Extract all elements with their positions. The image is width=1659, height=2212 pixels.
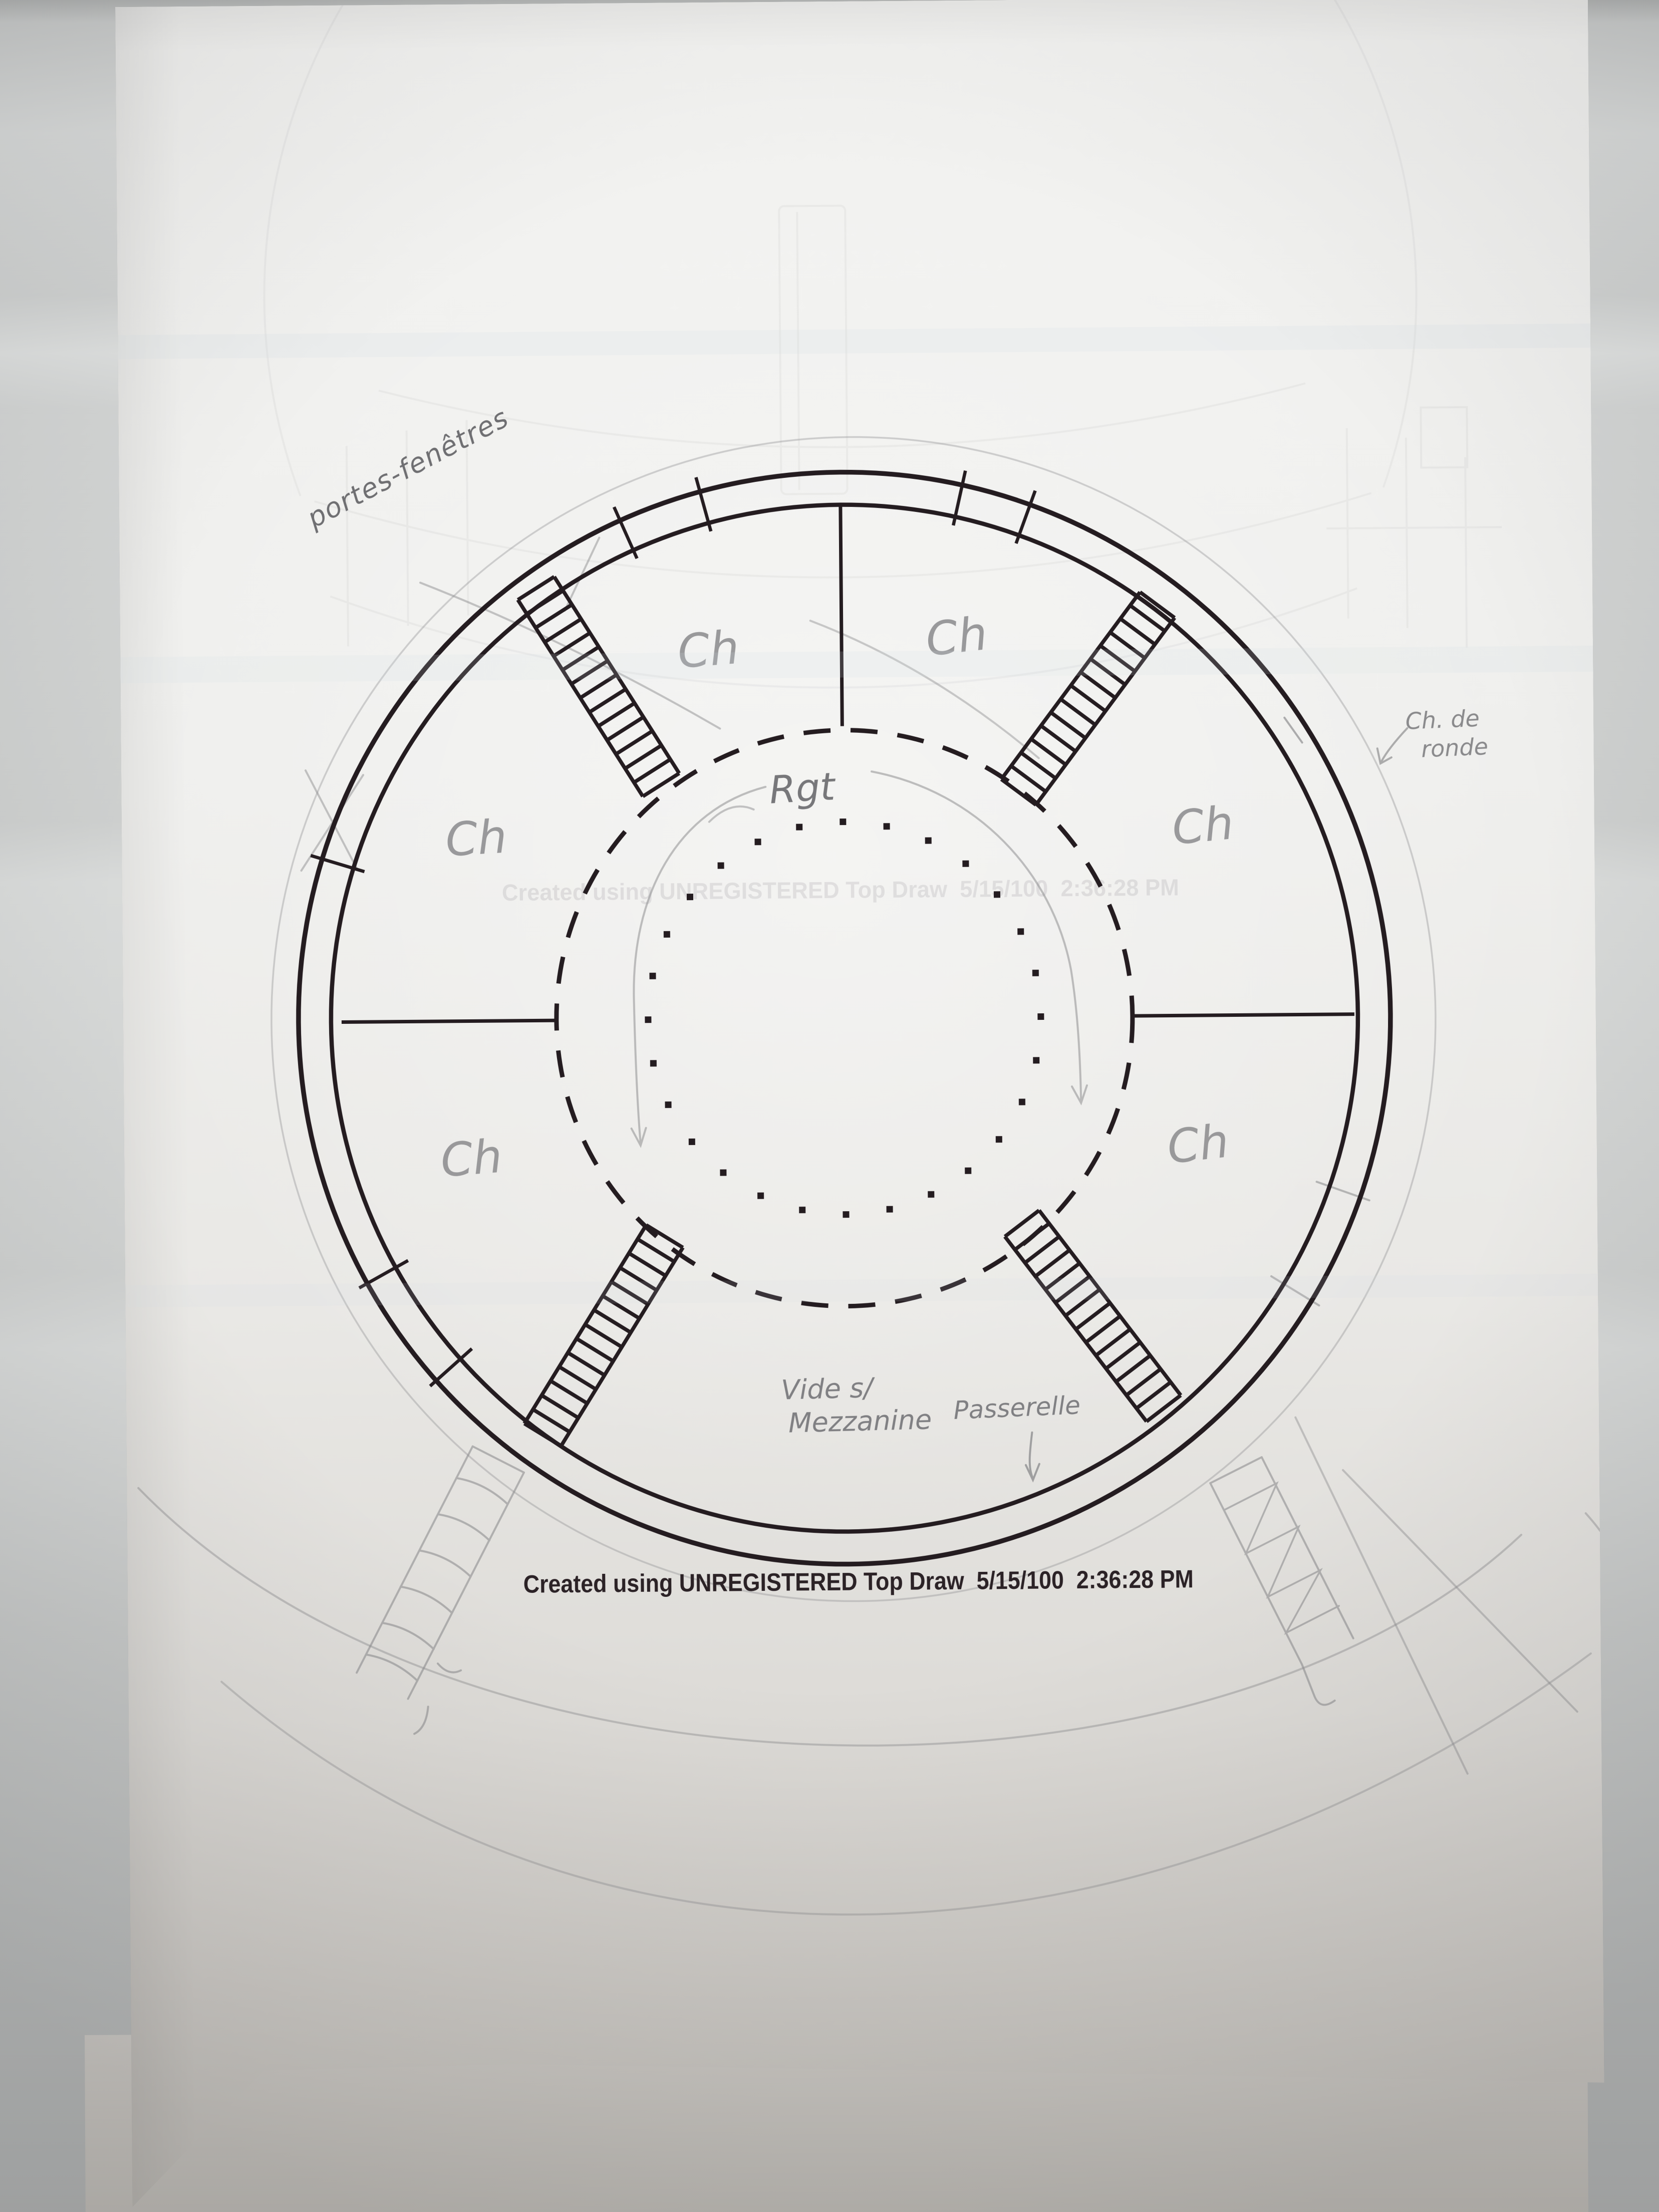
stair-southeast	[1005, 1210, 1181, 1421]
pencil-sketch-layer	[130, 431, 1605, 1920]
stair-northwest	[518, 577, 679, 796]
room-label: Ch	[923, 607, 990, 667]
pencil-base-arc-1	[138, 1477, 1523, 1751]
paper-sheet: Created using UNREGISTERED Top Draw 5/15…	[115, 0, 1605, 2212]
radial-line-west	[342, 1020, 557, 1022]
stair-northeast	[1001, 592, 1175, 805]
annotation-rgt: Rgt	[768, 764, 838, 812]
drawing-svg: Created using UNREGISTERED Top Draw 5/15…	[115, 0, 1605, 2212]
ghost-stamp-text: Created using UNREGISTERED Top Draw 5/15…	[502, 874, 1179, 906]
stair-southwest	[524, 1225, 683, 1446]
room-label: Ch	[439, 1130, 504, 1188]
annotation-mezzanine: Mezzanine	[788, 1404, 932, 1439]
handwritten-annotations: Ch Ch Ch Ch Ch Ch Rgt portes-fenêtres Ch…	[301, 394, 1494, 1443]
circulation-arrow-right	[872, 770, 1087, 1104]
circulation-arrow-left	[629, 787, 768, 1146]
photo-frame: Created using UNREGISTERED Top Draw 5/15…	[0, 0, 1659, 2212]
room-label: Ch	[1165, 1114, 1232, 1174]
pencil-base-arc-2	[221, 1653, 1593, 1919]
pencil-ramp-line-1	[1295, 1416, 1468, 1775]
annotation-vide: Vide s/	[781, 1372, 876, 1406]
pencil-stair-bottom-left	[355, 1446, 526, 1735]
footer-stamp-text: Created using UNREGISTERED Top Draw 5/15…	[523, 1565, 1194, 1598]
passerelle-arrow	[1025, 1433, 1039, 1480]
pencil-sweep-2	[810, 619, 1039, 760]
annotation-chemin-de-ronde-line2: ronde	[1421, 733, 1489, 763]
radial-line-north	[841, 505, 842, 726]
room-label: Ch	[676, 621, 741, 679]
annotation-passerelle: Passerelle	[953, 1391, 1081, 1425]
radial-line-east	[1133, 1014, 1354, 1016]
pencil-cross	[301, 770, 364, 871]
annotation-chemin-de-ronde-line1: Ch. de	[1405, 705, 1480, 735]
pencil-ramp-line-2	[1343, 1468, 1577, 1714]
ghost-underdrawing	[260, 0, 1503, 692]
room-label: Ch	[1170, 796, 1236, 855]
room-label: Ch	[444, 810, 508, 867]
